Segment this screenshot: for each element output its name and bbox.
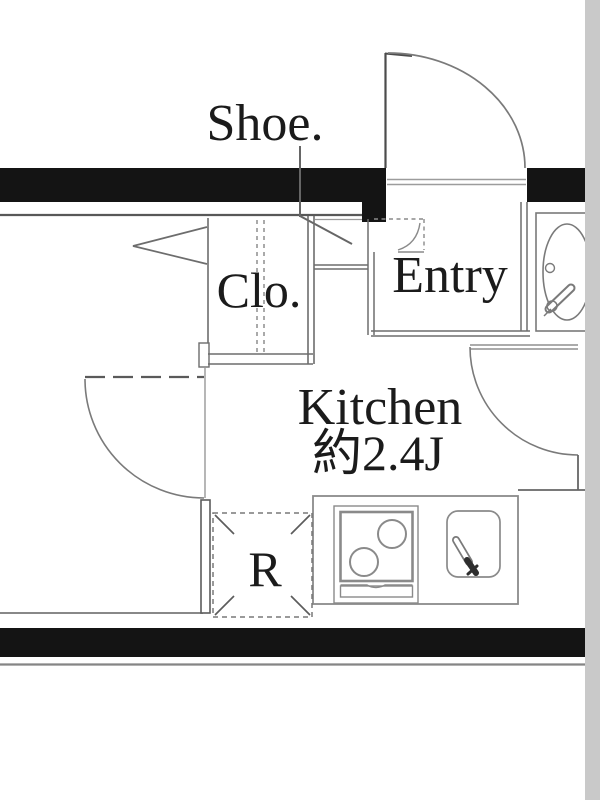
- label-shoe: Shoe.: [207, 95, 324, 152]
- label-refrigerator: R: [248, 541, 282, 597]
- right-edge-band: [585, 0, 600, 800]
- wall-pier: [201, 500, 210, 613]
- bottom-wall: [0, 628, 593, 657]
- entry-door-swing-arc: [388, 53, 525, 168]
- stove-burner-right: [378, 520, 406, 548]
- bathroom-door-swing-arc: [470, 347, 578, 455]
- stove-burner-left: [350, 548, 378, 576]
- room-door: [85, 367, 205, 498]
- vanity-faucet-inner: [549, 288, 571, 309]
- top-wall-left-segment: [0, 168, 383, 202]
- closet-corner-notch: [199, 343, 209, 367]
- fridge-corner-tr: [291, 515, 310, 534]
- label-closet: Clo.: [217, 262, 302, 318]
- label-entry: Entry: [392, 247, 508, 304]
- entry-door: [385, 53, 526, 185]
- entry-door-hinge-pier: [362, 168, 386, 222]
- label-kitchen-size: 約2.4J: [312, 425, 444, 481]
- fridge-corner-tl: [215, 515, 234, 534]
- top-wall-right-segment: [527, 168, 593, 202]
- fridge-corner-bl: [215, 596, 234, 615]
- fridge-corner-br: [291, 596, 310, 615]
- floor-plan: Shoe. Clo. Entry Kitchen 約2.4J R: [0, 0, 600, 800]
- bathroom-door: [470, 345, 600, 490]
- vanity-drain: [546, 264, 555, 273]
- stove-cooktop: [341, 512, 413, 581]
- kitchen-counter: [313, 496, 518, 604]
- floor-plan-canvas: Shoe. Clo. Entry Kitchen 約2.4J R: [0, 0, 600, 800]
- room-door-swing-arc: [85, 379, 204, 498]
- triangle-door-symbol: [133, 227, 207, 264]
- shoe-cabinet-door-arc: [398, 223, 420, 250]
- exterior-walls: [0, 168, 593, 657]
